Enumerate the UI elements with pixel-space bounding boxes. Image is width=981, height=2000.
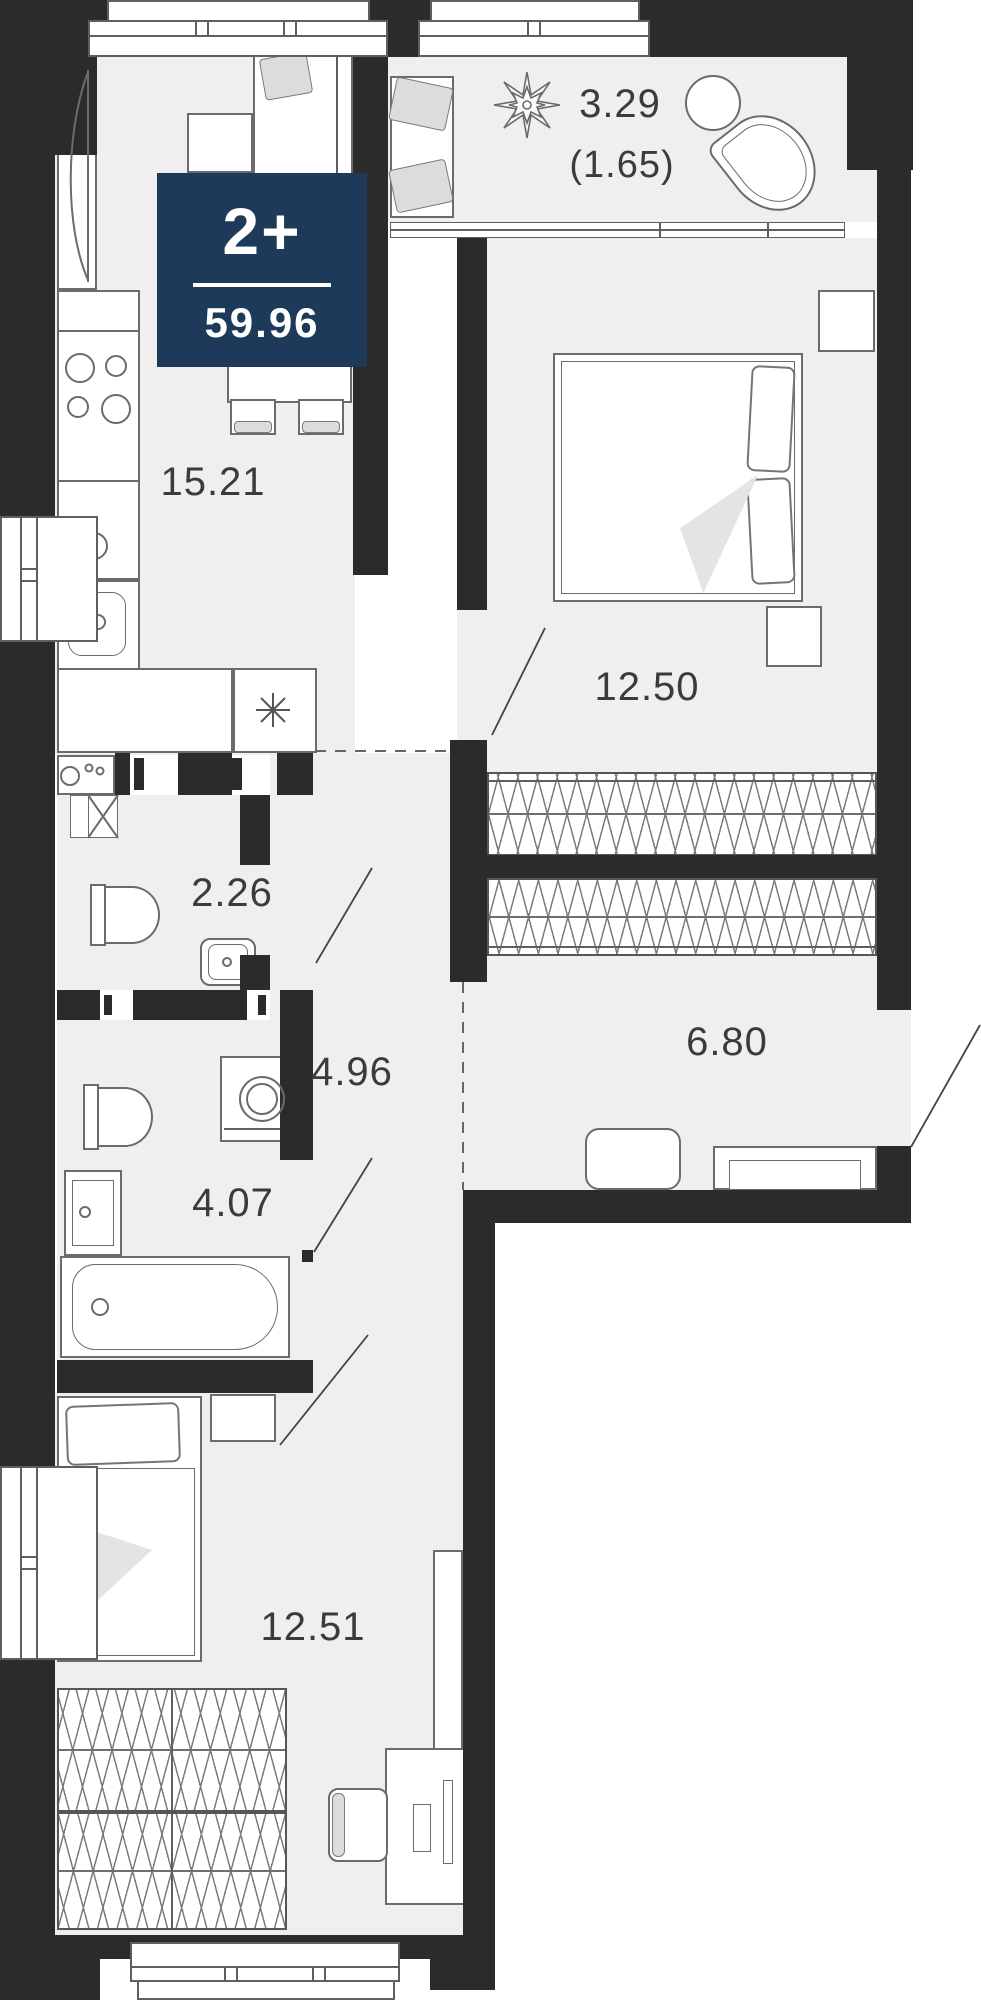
- nightstand: [818, 290, 875, 352]
- window-bottom-sill: [130, 1942, 400, 1968]
- window-bottom: [137, 1980, 395, 2000]
- window-mullion: [20, 580, 38, 582]
- shelf: [433, 1550, 463, 1755]
- door-jamb: [258, 995, 266, 1015]
- room-area-label-bedroom-1: 12.50: [594, 667, 699, 707]
- room-area-label-loggia: 3.29: [579, 84, 661, 124]
- badge-total-area: 59.96: [204, 299, 319, 347]
- wall: [240, 955, 270, 990]
- room-area-label-bedroom-2: 12.51: [260, 1607, 365, 1647]
- wall: [877, 1146, 911, 1223]
- pillow: [746, 365, 795, 473]
- room-area-label-hall: 6.80: [686, 1022, 768, 1062]
- bathtub-inner: [72, 1264, 278, 1350]
- wall: [457, 238, 487, 610]
- wc-counter: [57, 755, 115, 795]
- window-mullion: [20, 568, 38, 570]
- door-jamb: [232, 758, 242, 790]
- wardrobe-bedroom-1: [487, 772, 877, 856]
- stove: [57, 330, 140, 482]
- wall: [450, 740, 487, 982]
- floor-entrance-nook: [877, 1010, 911, 1146]
- wall: [115, 753, 130, 795]
- kitchen-counter: [57, 668, 233, 753]
- room-area-label-kitchen-living: 15.21: [160, 462, 265, 502]
- window-left-bedroom-2-sill: [36, 1466, 98, 1660]
- room-area-coef-label-loggia: (1.65): [569, 146, 674, 184]
- wall: [240, 795, 270, 865]
- room-area-label-bathroom: 4.07: [192, 1183, 274, 1223]
- room-area-label-wc: 2.26: [191, 873, 273, 913]
- glazing-break: [659, 222, 661, 238]
- office-chair-cushion: [332, 1793, 345, 1857]
- dresser: [766, 606, 822, 667]
- wall: [463, 1223, 495, 1990]
- wall: [877, 0, 911, 1010]
- window-left-kitchen: [0, 516, 22, 642]
- window-top-living-sill: [88, 35, 388, 57]
- window-left-kitchen-sill: [36, 516, 98, 642]
- door-swing-entrance: [911, 1025, 980, 1147]
- monitor: [443, 1780, 453, 1864]
- nightstand: [210, 1394, 276, 1442]
- floor-bathroom-doorway: [280, 1160, 313, 1252]
- wall: [463, 1190, 911, 1223]
- glazing-break: [767, 222, 769, 238]
- wall: [430, 1935, 495, 1990]
- window-top-loggia: [430, 0, 640, 22]
- vent-box-x: [88, 795, 118, 838]
- badge-rooms-label: 2+: [222, 193, 301, 269]
- wardrobe-line: [489, 780, 875, 782]
- floor-plan: 15.21 3.29 (1.65) 12.50 2.26 4.96 6.80 4…: [0, 0, 981, 2000]
- console-inner: [729, 1160, 861, 1190]
- room-area-label-corridor: 4.96: [311, 1052, 393, 1092]
- wall: [133, 990, 247, 1020]
- refrigerator: [233, 668, 317, 753]
- keyboard: [413, 1804, 431, 1852]
- badge-divider: [193, 283, 331, 287]
- wardrobe-hall: [487, 878, 877, 956]
- toilet-bowl: [97, 1087, 153, 1147]
- wall: [280, 990, 313, 1020]
- wall: [0, 1935, 100, 2000]
- wall: [57, 1360, 313, 1393]
- washbasin-inner: [72, 1180, 114, 1246]
- side-table: [187, 113, 253, 173]
- wall: [277, 753, 313, 795]
- window-top-loggia-sill: [418, 35, 650, 57]
- pillow: [65, 1402, 181, 1466]
- wardrobe-divider: [171, 1814, 173, 1928]
- pillow: [746, 477, 795, 585]
- vent-box: [70, 795, 90, 838]
- wardrobe-line: [489, 946, 875, 948]
- chair-cushion: [234, 421, 272, 433]
- toilet-bowl: [104, 886, 160, 944]
- wall: [487, 855, 877, 878]
- door-jamb: [104, 995, 112, 1015]
- wall: [178, 753, 232, 795]
- pouf: [585, 1128, 681, 1190]
- sofa-cushion: [259, 51, 314, 101]
- window-mullion: [20, 1568, 38, 1570]
- loggia-glazing: [390, 222, 845, 238]
- window-mullion: [20, 1556, 38, 1558]
- window-top-living: [107, 0, 370, 22]
- wall: [302, 1250, 313, 1262]
- kitchen-cabinet: [57, 290, 140, 332]
- wall: [57, 990, 100, 1020]
- apartment-badge: 2+ 59.96: [157, 173, 367, 367]
- door-jamb: [134, 758, 144, 790]
- chair-cushion: [302, 421, 340, 433]
- wardrobe-divider: [171, 1690, 173, 1810]
- window-left-bedroom-2: [0, 1466, 22, 1660]
- wall: [280, 1020, 313, 1160]
